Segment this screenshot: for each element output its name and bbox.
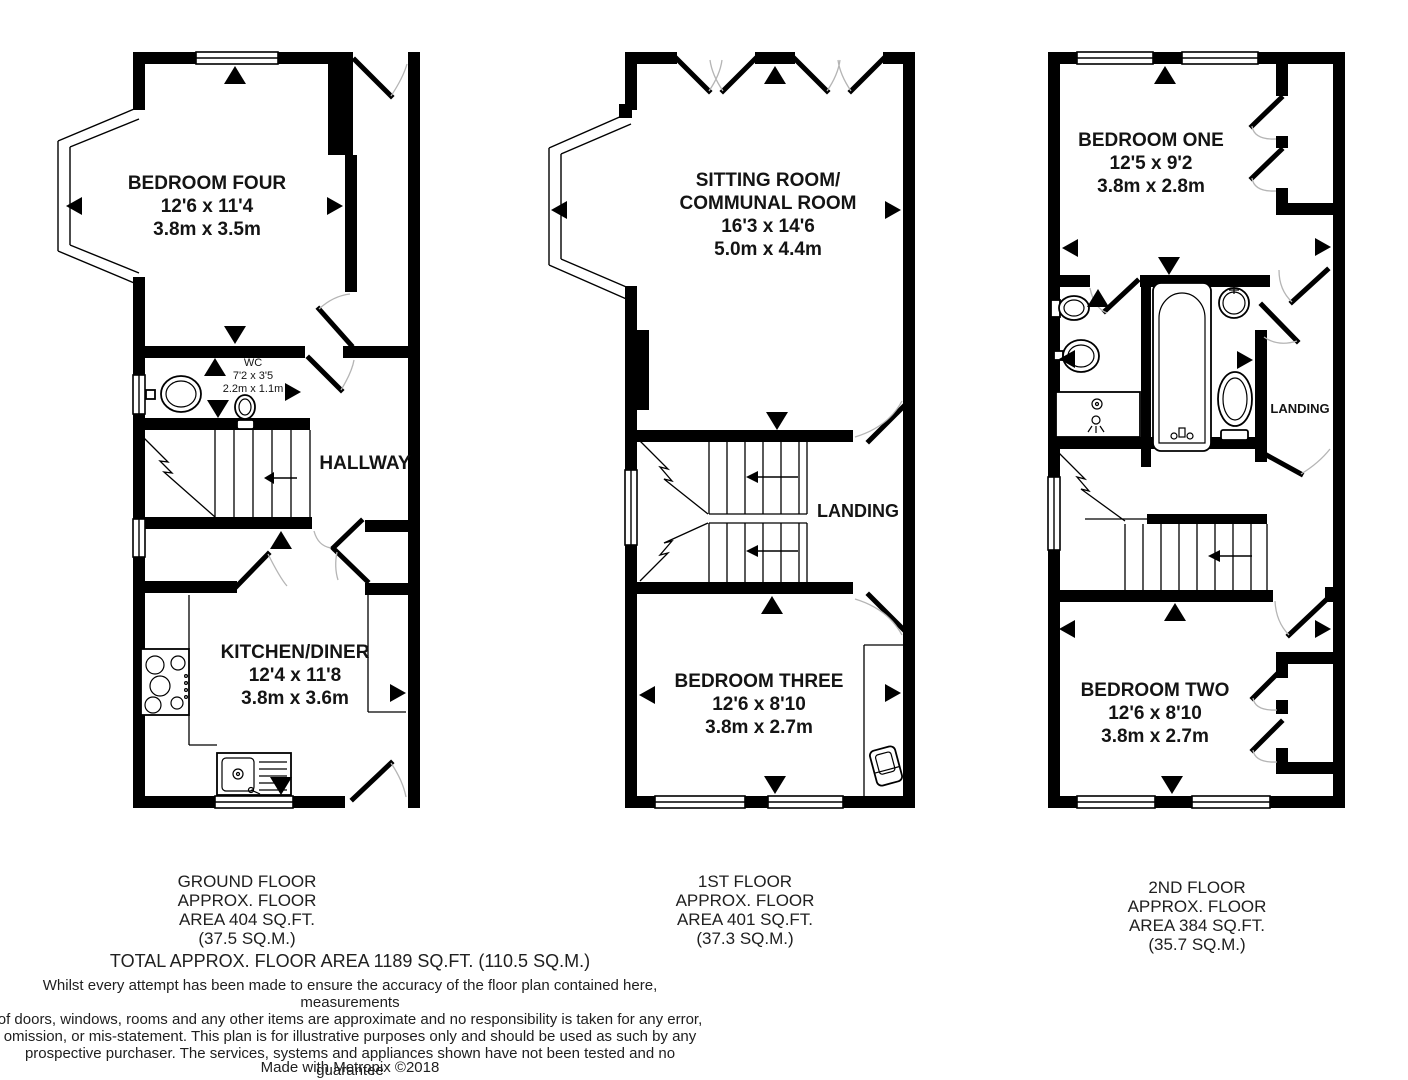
room-label-sitting-room: SITTING ROOM/ bbox=[696, 170, 841, 191]
arrow-right-icon bbox=[1315, 238, 1331, 256]
room-dim-imperial: 16'3 x 14'6 bbox=[721, 216, 815, 237]
caption-line: APPROX. FLOOR bbox=[1047, 897, 1347, 916]
room-label-wc: WC bbox=[244, 357, 262, 369]
caption-line: (35.7 SQ.M.) bbox=[1047, 935, 1347, 954]
room-label-sitting-room2: COMMUNAL ROOM bbox=[680, 193, 857, 214]
room-dim-metric: 3.8m x 3.6m bbox=[241, 688, 349, 709]
arrow-left-icon bbox=[1062, 239, 1078, 257]
ground-stairs bbox=[140, 430, 310, 517]
arrow-right-icon bbox=[1315, 620, 1331, 638]
bath-icon bbox=[1153, 283, 1211, 451]
room-label-bedroom-three: BEDROOM THREE bbox=[675, 671, 844, 692]
arrow-right-icon bbox=[885, 201, 901, 219]
first-stairs bbox=[640, 438, 807, 582]
arrow-left-icon bbox=[551, 201, 567, 219]
landing-corridor-door bbox=[1261, 449, 1330, 474]
lobby-door bbox=[237, 554, 287, 586]
arrow-up-icon bbox=[1154, 66, 1176, 84]
arrow-down-icon bbox=[224, 326, 246, 344]
room-label-bedroom-one: BEDROOM ONE bbox=[1078, 130, 1224, 151]
arrow-up-icon bbox=[224, 66, 246, 84]
metropix-credit: Made with Metropix ©2018 bbox=[0, 1059, 700, 1076]
caption-line: 2ND FLOOR bbox=[1047, 878, 1347, 897]
landing-bottom-door bbox=[855, 595, 904, 635]
room-label-hallway: HALLWAY bbox=[319, 453, 410, 474]
arrow-left-icon bbox=[639, 686, 655, 704]
room-dim-imperial: 12'4 x 11'8 bbox=[249, 665, 342, 686]
lobby-double-doors bbox=[314, 521, 367, 581]
first-floor-caption: 1ST FLOOR APPROX. FLOOR AREA 401 SQ.FT. … bbox=[595, 872, 895, 948]
landing-top-door bbox=[855, 401, 904, 441]
first-labels: SITTING ROOM/ COMMUNAL ROOM 16'3 x 14'6 … bbox=[675, 170, 899, 738]
arrow-left-icon bbox=[66, 197, 82, 215]
shower-tray-icon bbox=[1056, 392, 1140, 437]
front-door bbox=[355, 60, 407, 96]
caption-line: APPROX. FLOOR bbox=[595, 891, 895, 910]
arrow-up-icon bbox=[270, 531, 292, 549]
ground-floor-plan: BEDROOM FOUR 12'6 x 11'4 3.8m x 3.5m WC … bbox=[58, 52, 420, 808]
first-floor-plan: SITTING ROOM/ COMMUNAL ROOM 16'3 x 14'6 … bbox=[549, 52, 915, 808]
bay-window bbox=[58, 107, 139, 285]
room-label-landing: LANDING bbox=[1270, 401, 1329, 416]
arrow-down-icon bbox=[207, 400, 229, 418]
bedroom-three-wardrobe bbox=[864, 645, 903, 796]
caption-line: APPROX. FLOOR bbox=[97, 891, 397, 910]
arrow-up-icon bbox=[1164, 603, 1186, 621]
room-dim-imperial: 12'6 x 11'4 bbox=[161, 196, 254, 217]
caption-line: 1ST FLOOR bbox=[595, 872, 895, 891]
arrow-down-icon bbox=[764, 776, 786, 794]
arrow-left-icon bbox=[1059, 620, 1075, 638]
bathroom-door bbox=[1262, 305, 1297, 343]
room-dim-metric: 3.8m x 3.5m bbox=[153, 219, 261, 240]
room-dim-metric: 3.8m x 2.8m bbox=[1097, 176, 1205, 197]
stairs-direction-arrow bbox=[746, 471, 758, 483]
arrow-right-icon bbox=[390, 684, 406, 702]
toilet-icon bbox=[237, 420, 254, 429]
basin-icon bbox=[1219, 286, 1249, 318]
caption-line: (37.3 SQ.M.) bbox=[595, 929, 895, 948]
room-label-landing: LANDING bbox=[817, 501, 899, 521]
room-dim-metric: 5.0m x 4.4m bbox=[714, 239, 822, 260]
arrow-up-icon bbox=[764, 66, 786, 84]
second-floor-caption: 2ND FLOOR APPROX. FLOOR AREA 384 SQ.FT. … bbox=[1047, 878, 1347, 954]
disclaimer-line: of doors, windows, rooms and any other i… bbox=[0, 1011, 705, 1028]
bedroom-four-door bbox=[319, 294, 351, 345]
arrow-down-icon bbox=[1158, 257, 1180, 275]
room-label-bedroom-four: BEDROOM FOUR bbox=[128, 173, 287, 194]
tap-icon bbox=[146, 390, 155, 399]
room-dim-imperial: 12'6 x 8'10 bbox=[712, 694, 806, 715]
room-dim-imperial: 12'5 x 9'2 bbox=[1110, 153, 1193, 174]
room-label-bedroom-two: BEDROOM TWO bbox=[1081, 680, 1230, 701]
arrow-right-icon bbox=[885, 684, 901, 702]
second-floor-plan: BEDROOM ONE 12'5 x 9'2 3.8m x 2.8m LANDI… bbox=[1048, 52, 1345, 808]
toilet-icon bbox=[1218, 372, 1252, 440]
stairs-direction-arrow bbox=[1208, 550, 1220, 562]
kitchen-door bbox=[353, 763, 406, 799]
disclaimer-line: Whilst every attempt has been made to en… bbox=[0, 977, 705, 1011]
arrow-right-icon bbox=[327, 197, 343, 215]
room-dim-imperial: 12'6 x 8'10 bbox=[1108, 703, 1202, 724]
stairs-direction-arrow bbox=[746, 545, 758, 557]
floorplan-canvas: BEDROOM FOUR 12'6 x 11'4 3.8m x 3.5m WC … bbox=[0, 0, 1408, 1080]
caption-line: AREA 401 SQ.FT. bbox=[595, 910, 895, 929]
room-dim-metric: 3.8m x 2.7m bbox=[705, 717, 813, 738]
caption-line: (37.5 SQ.M.) bbox=[97, 929, 397, 948]
caption-line: AREA 404 SQ.FT. bbox=[97, 910, 397, 929]
stairs-direction-arrow bbox=[264, 472, 274, 484]
total-floor-area: TOTAL APPROX. FLOOR AREA 1189 SQ.FT. (11… bbox=[0, 951, 700, 972]
room-label-kitchen-diner: KITCHEN/DINER bbox=[221, 642, 370, 663]
caption-line: AREA 384 SQ.FT. bbox=[1047, 916, 1347, 935]
caption-line: GROUND FLOOR bbox=[97, 872, 397, 891]
room-dim-imperial: 7'2 x 3'5 bbox=[233, 370, 273, 382]
ground-floor-caption: GROUND FLOOR APPROX. FLOOR AREA 404 SQ.F… bbox=[97, 872, 397, 948]
arrow-up-icon bbox=[761, 596, 783, 614]
room-dim-metric: 2.2m x 1.1m bbox=[223, 383, 284, 395]
arrow-down-icon bbox=[766, 412, 788, 430]
disclaimer-line: omission, or mis-statement. This plan is… bbox=[0, 1028, 705, 1045]
room-dim-metric: 3.8m x 2.7m bbox=[1101, 726, 1209, 747]
bathroom-fixtures bbox=[1051, 283, 1252, 451]
hall-door bbox=[309, 358, 354, 390]
arrow-up-icon bbox=[204, 358, 226, 376]
chair-icon bbox=[869, 745, 903, 787]
arrow-down-icon bbox=[1161, 776, 1183, 794]
bedroom-one-landing-door bbox=[1279, 270, 1327, 302]
arrow-right-icon bbox=[1237, 351, 1253, 369]
arrow-right-icon bbox=[285, 383, 301, 401]
